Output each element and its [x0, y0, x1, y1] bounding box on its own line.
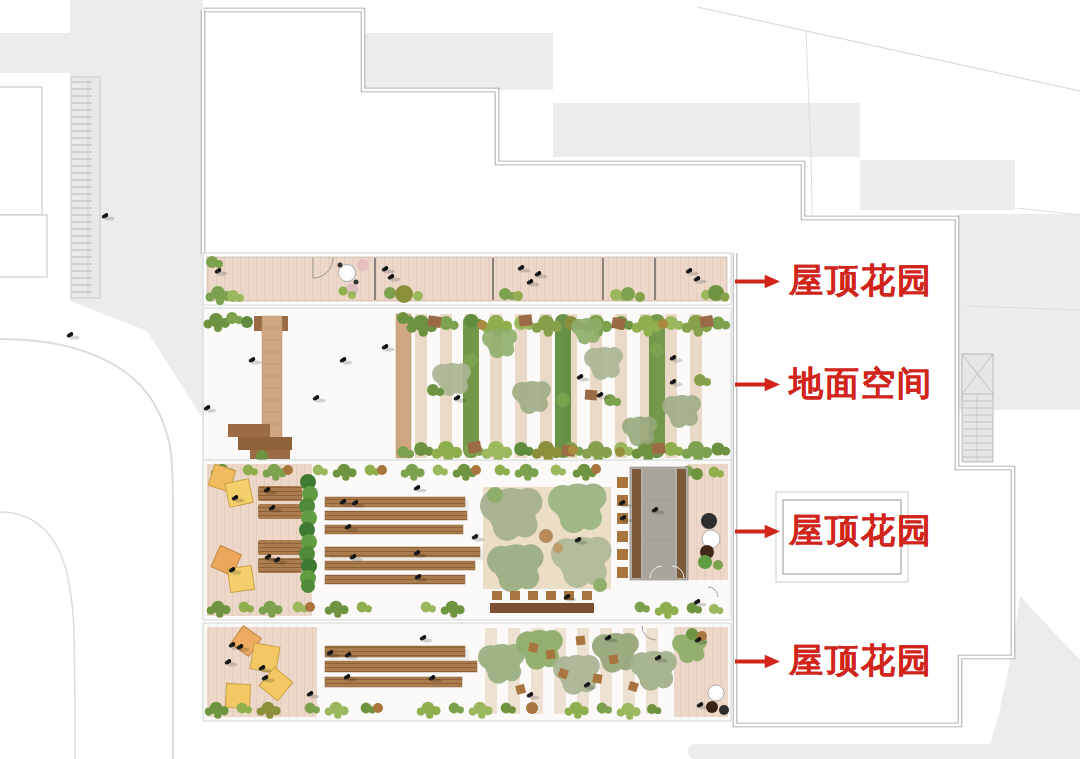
arrow-right-icon [735, 273, 781, 290]
road-curves [0, 339, 173, 759]
deck-left [207, 627, 317, 717]
annotation-text: 地面空间 [789, 361, 933, 407]
arrow-right-icon [735, 523, 781, 540]
adjacent-roof-block [860, 160, 1015, 210]
landscape-plan-canvas: 屋顶花园 地面空间 屋顶花园 屋顶花园 [0, 0, 1080, 759]
annotation-roof-garden-middle: 屋顶花园 [735, 511, 933, 551]
tree-plaza [480, 484, 611, 593]
street-band-top-left [0, 33, 71, 73]
roof-terrace-strip-band [203, 253, 731, 305]
annotation-text: 屋顶花园 [789, 638, 933, 684]
annotation-text: 屋顶花园 [789, 258, 933, 304]
building-outlines [0, 87, 47, 277]
arrow-right-icon [735, 376, 781, 393]
stairs-right [962, 354, 993, 462]
adjacent-roof-block [553, 103, 860, 157]
bottom-strip [688, 744, 1080, 759]
ground-level-garden-band [203, 308, 731, 463]
adjacent-roof-block [365, 33, 553, 90]
long-dark-bench [490, 603, 594, 613]
roof-garden-lower-band [203, 623, 731, 721]
bar-pavilion [630, 467, 688, 580]
annotation-text: 屋顶花园 [789, 508, 933, 554]
roof-garden-main-band [203, 460, 731, 620]
arrow-right-icon [735, 653, 781, 670]
annotation-ground-space: 地面空间 [735, 364, 933, 404]
stairs-left [71, 77, 100, 298]
corner-wedge [986, 596, 1080, 759]
annotation-roof-garden-top: 屋顶花园 [735, 261, 933, 301]
annotation-roof-garden-bottom: 屋顶花园 [735, 641, 933, 681]
